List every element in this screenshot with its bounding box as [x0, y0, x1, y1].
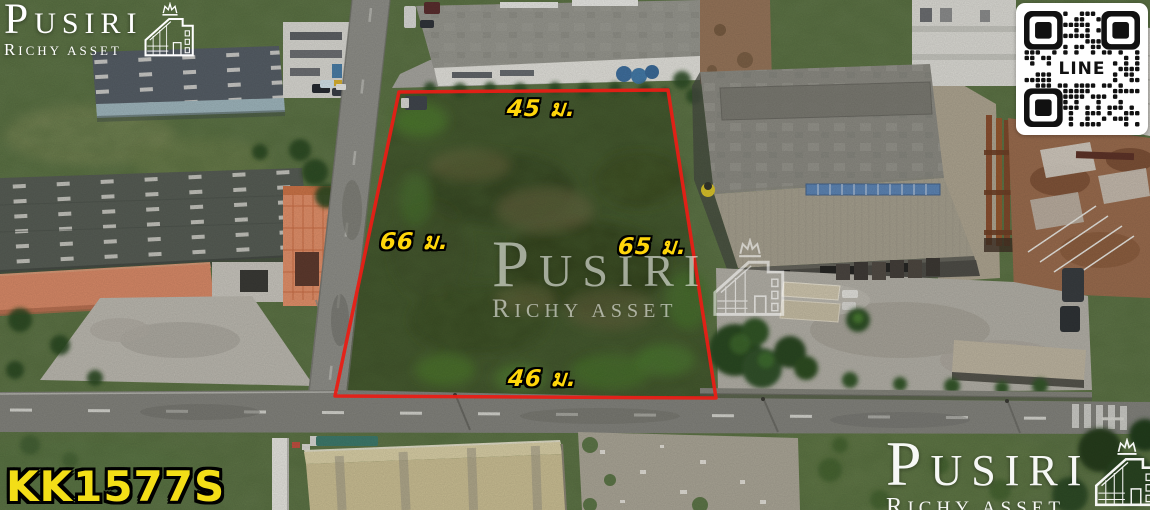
brand-house-icon: [1090, 438, 1150, 508]
line-qr-code: LINE: [1016, 3, 1148, 135]
brand-logo-top-left: PUSIRI RICHY ASSET: [4, 2, 197, 58]
watermark-subtitle: RICHY ASSET: [492, 296, 709, 322]
brand-subtitle: RICHY ASSET: [4, 42, 143, 59]
brand-name: PUSIRI: [886, 438, 1090, 492]
dimension-label-right: 65 ม.: [616, 229, 688, 265]
brand-name: PUSIRI: [4, 2, 143, 39]
brand-subtitle: RICHY ASSET: [886, 495, 1090, 510]
qr-line-label: LINE: [1054, 59, 1111, 79]
dimension-label-top: 45 ม.: [505, 91, 577, 127]
brand-logo-bottom-right: PUSIRI RICHY ASSET: [886, 438, 1150, 510]
dimension-label-bottom: 46 ม.: [506, 361, 578, 397]
listing-code: KK1577S: [6, 462, 225, 510]
watermark-house-icon: [709, 238, 791, 318]
dimension-label-left: 66 ม.: [378, 224, 450, 260]
brand-house-icon: [143, 2, 197, 58]
aerial-land-listing-photo: PUSIRI RICHY ASSET PUSIRI RICHY ASSET: [0, 0, 1150, 510]
